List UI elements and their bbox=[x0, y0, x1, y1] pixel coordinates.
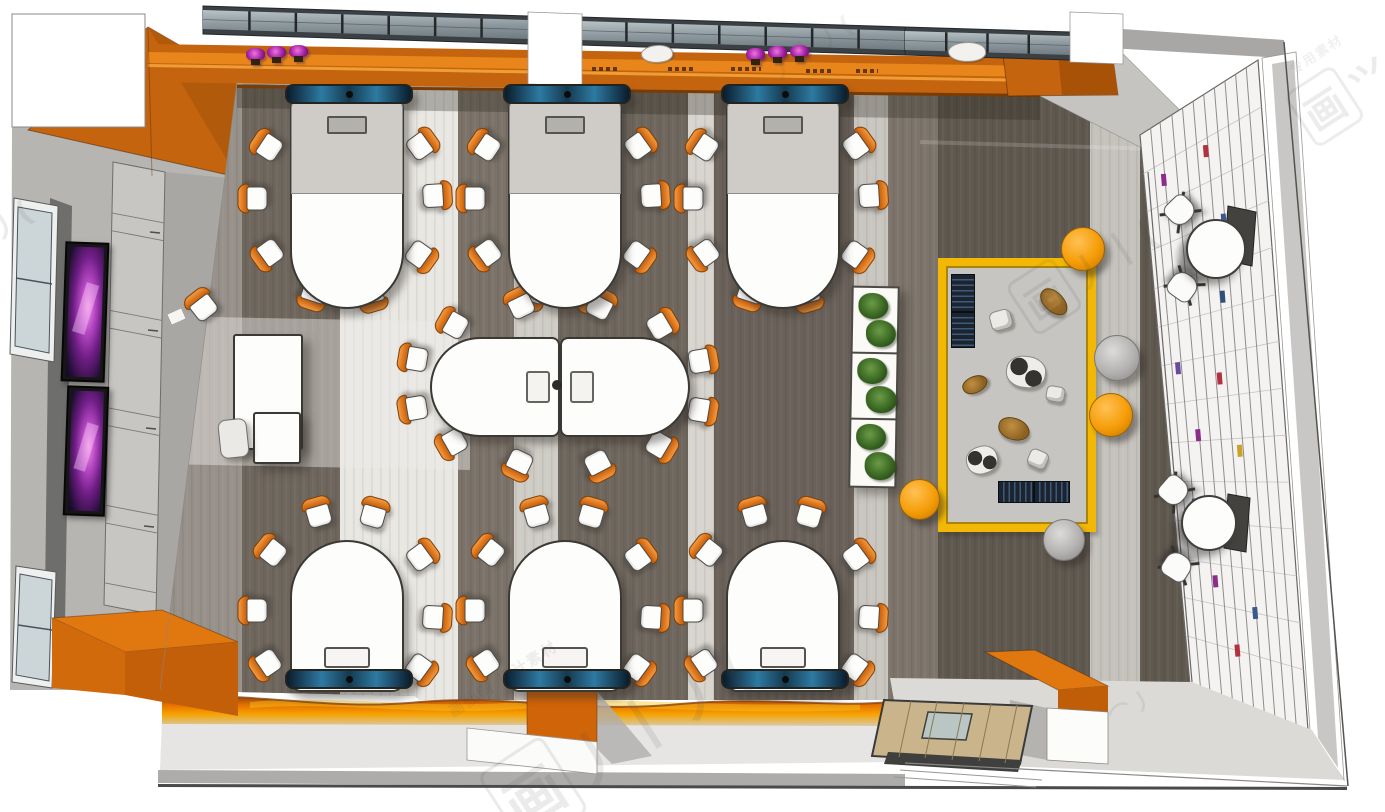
white-column bbox=[528, 12, 582, 86]
entry-white-block bbox=[1047, 708, 1108, 764]
cabinet-handle bbox=[144, 526, 154, 527]
shelf-item bbox=[1220, 290, 1226, 302]
shelf-item bbox=[1237, 445, 1243, 457]
cabinet-handle bbox=[148, 330, 158, 331]
shelf-item bbox=[1252, 607, 1258, 619]
shelf-item bbox=[1195, 429, 1201, 441]
shelf-item bbox=[1203, 145, 1209, 157]
exterior-block bbox=[12, 14, 145, 127]
shelf-item bbox=[1217, 372, 1223, 384]
orange-column bbox=[527, 684, 597, 744]
cabinet-handle bbox=[146, 428, 156, 429]
shelf-monitor bbox=[1224, 206, 1256, 266]
white-column bbox=[1070, 12, 1123, 64]
cabinet-handle bbox=[150, 232, 160, 233]
shelf-item bbox=[1180, 200, 1186, 212]
top-right-wall-strip bbox=[1108, 28, 1284, 58]
shelf-item bbox=[1192, 498, 1198, 510]
shelf-item bbox=[1212, 575, 1218, 587]
shelf-item bbox=[1234, 644, 1240, 656]
shelf-item bbox=[1175, 362, 1181, 374]
shelf-item bbox=[1161, 174, 1167, 186]
orange-bench-front bbox=[125, 642, 238, 716]
cabinet-column bbox=[104, 162, 165, 615]
window-left-1-glass bbox=[15, 207, 52, 353]
shelf-monitor bbox=[1224, 494, 1250, 552]
shelf-item bbox=[1221, 213, 1227, 225]
floor-overlay bbox=[160, 316, 470, 470]
floorplan-render: 画仙网 设计素材画丿丨丿(画丿丨(专用素材画⺍丿丨丿(丿(⌒丿 bbox=[0, 0, 1385, 812]
shelf-item bbox=[1176, 286, 1182, 298]
structure-layer bbox=[0, 0, 1385, 812]
